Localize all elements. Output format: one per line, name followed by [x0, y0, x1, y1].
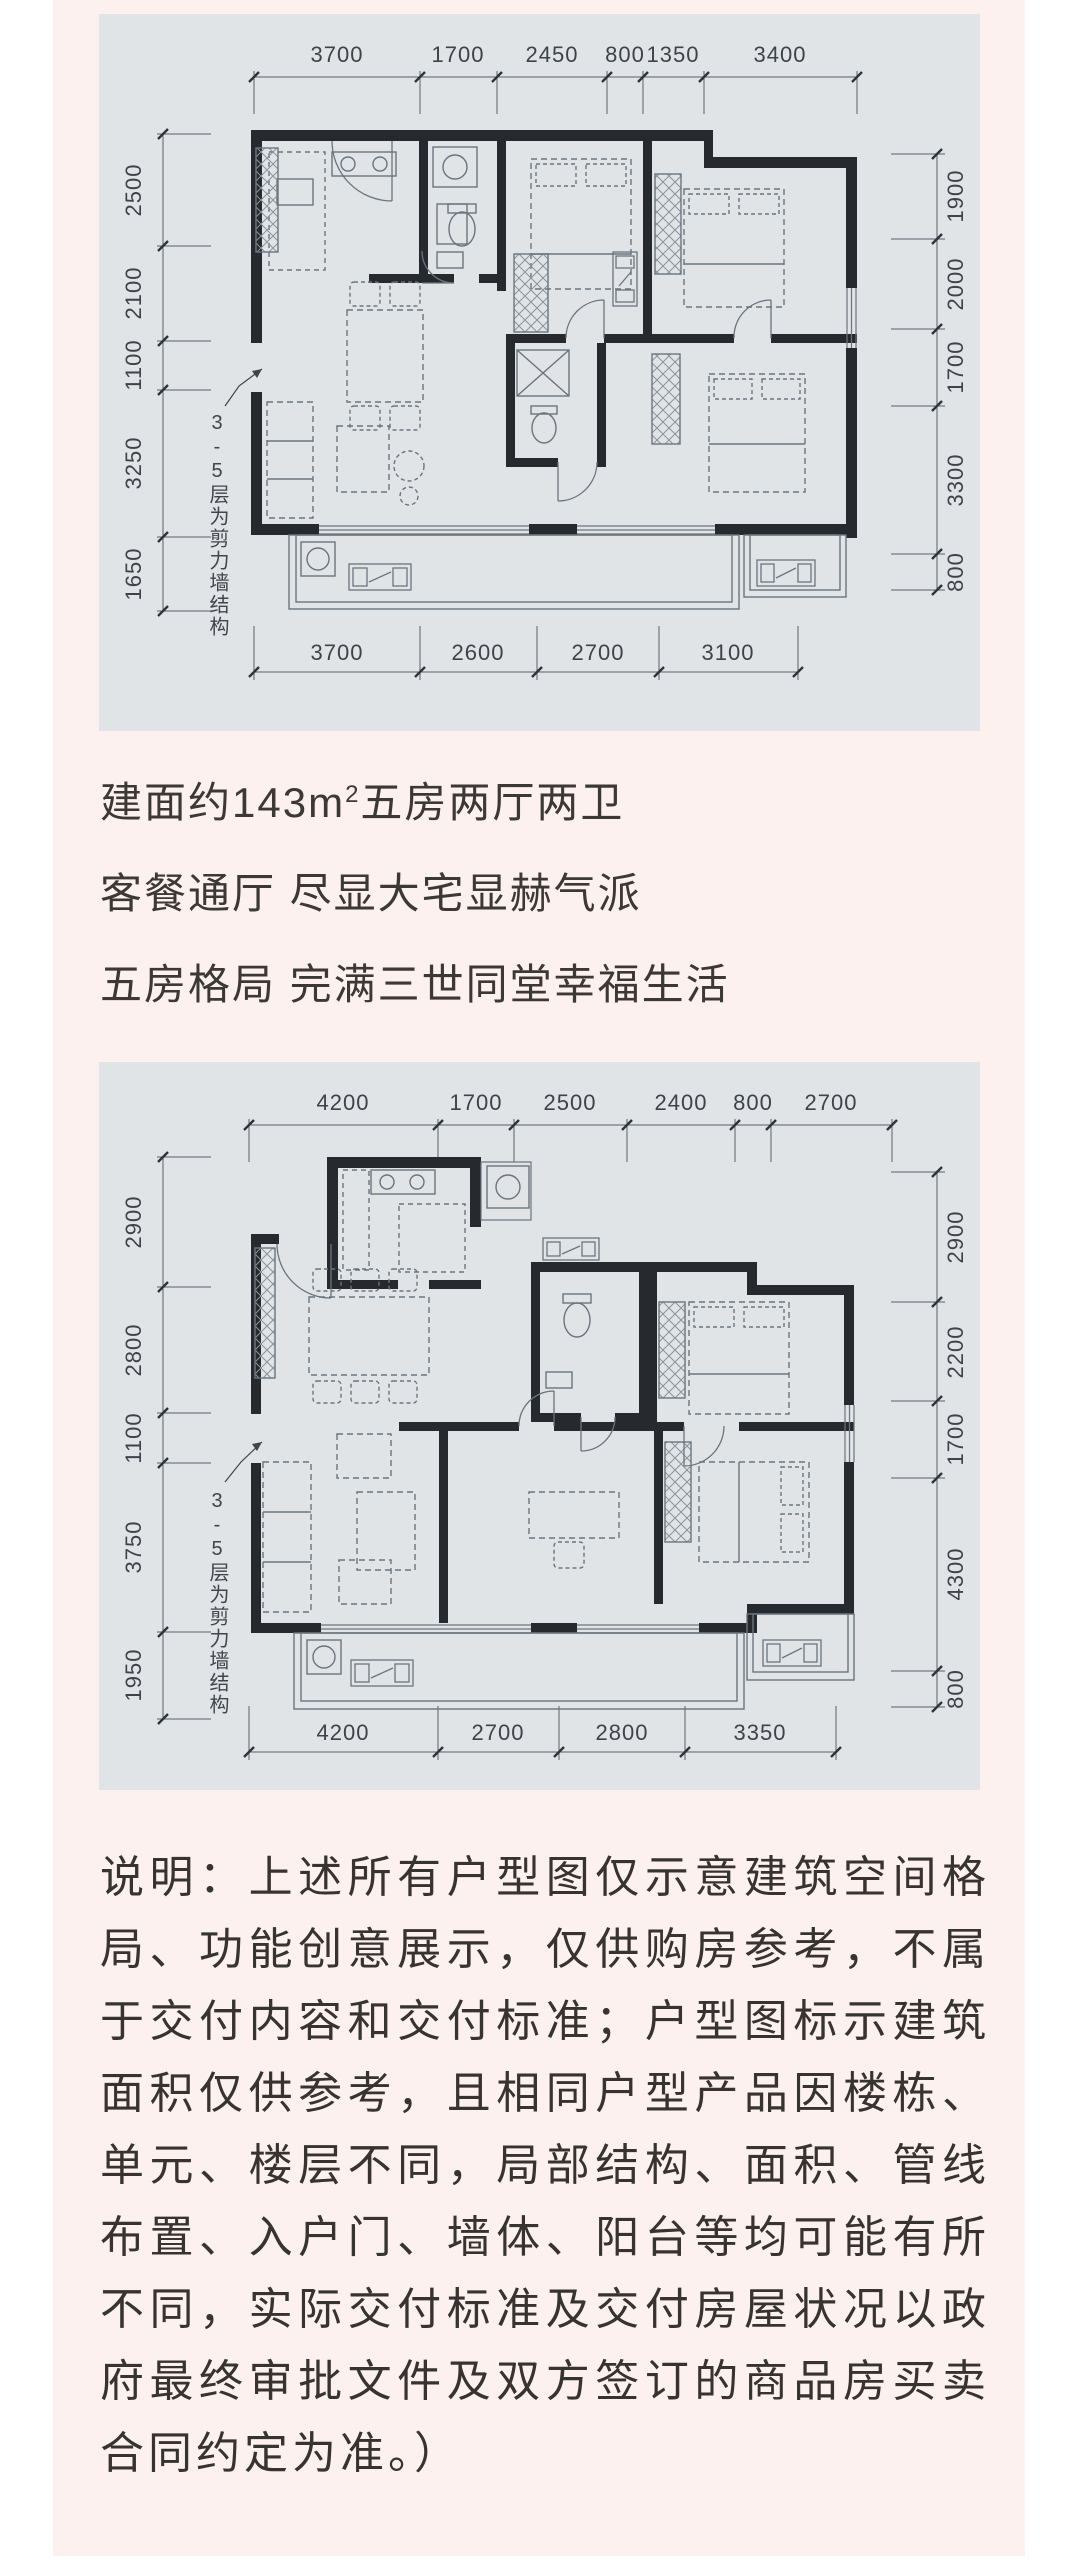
dim-label: 2450	[526, 42, 579, 67]
sofa	[267, 402, 313, 518]
disclaimer-line: 说明：上述所有户型图仅示意建筑空间格	[100, 1856, 986, 1928]
sofa	[263, 1462, 311, 1612]
dim-label: 1700	[943, 1413, 968, 1466]
toilet-icon	[563, 1294, 591, 1337]
dim-label: 800	[733, 1090, 773, 1115]
dim-label: 2800	[596, 1720, 649, 1745]
disclaimer-line: 单元、楼层不同，局部结构、面积、管线	[100, 2144, 986, 2216]
headline-line-3: 五房格局 完满三世同堂幸福生活	[100, 963, 980, 1006]
door-arcs	[332, 141, 771, 501]
bed	[684, 189, 784, 307]
dim-label: 800	[943, 552, 968, 592]
floorplan-1-card: 3700 1700 2450 800 1350 3400 3700 2600 2…	[99, 14, 980, 731]
dim-label: 1900	[943, 170, 968, 223]
dim-label: 2900	[943, 1211, 968, 1264]
floorplan-1-drawing: 3700 1700 2450 800 1350 3400 3700 2600 2…	[99, 14, 980, 731]
dim-label: 2700	[805, 1090, 858, 1115]
poster-panel: 3700 1700 2450 800 1350 3400 3700 2600 2…	[53, 0, 1025, 2556]
bed	[709, 374, 805, 492]
dining-table	[347, 282, 423, 430]
dim-label: 4200	[317, 1090, 370, 1115]
dim-label: 3300	[943, 454, 968, 507]
dim-label: 4200	[317, 1720, 370, 1745]
dim-label: 2700	[572, 640, 625, 665]
dimension-lines	[157, 1119, 945, 1760]
disclaimer-block: 说明：上述所有户型图仅示意建筑空间格 局、功能创意展示，仅供购房参考，不属 于交…	[100, 1856, 986, 2504]
dim-label: 3350	[734, 1720, 787, 1745]
dining-table	[309, 1269, 429, 1403]
page: { "page": { "background": "#ffffff", "pa…	[0, 0, 1080, 2567]
washing-machine-icon	[307, 1640, 341, 1674]
disclaimer-line: 局、功能创意展示，仅供购房参考，不属	[100, 1928, 986, 2000]
dim-label: 1350	[647, 42, 700, 67]
washing-machine-icon	[301, 542, 335, 576]
dim-label: 2400	[655, 1090, 708, 1115]
window-glyphs	[319, 288, 856, 534]
dim-label: 3700	[311, 640, 364, 665]
furniture	[256, 147, 805, 576]
disclaimer-line: 府最终审批文件及双方签订的商品房买卖	[100, 2360, 986, 2432]
dim-label: 2000	[943, 258, 968, 311]
toilet-icon	[531, 406, 557, 443]
stove-icon	[371, 1170, 435, 1194]
dim-label: 2800	[121, 1324, 146, 1377]
dimension-ticks	[158, 1120, 942, 1757]
dim-label: 2900	[121, 1196, 146, 1249]
disclaimer-line: 面积仅供参考，且相同户型产品因楼栋、	[100, 2072, 986, 2144]
dim-label: 3700	[311, 42, 364, 67]
dim-label: 800	[943, 1669, 968, 1709]
stove-icon	[332, 152, 396, 176]
toilet-icon	[448, 204, 476, 246]
washing-machine-icon	[433, 147, 477, 187]
desk	[529, 1492, 619, 1568]
headline-block: 建面约143m2五房两厅两卫 客餐通厅 尽显大宅显赫气派 五房格局 完满三世同堂…	[100, 781, 980, 1054]
bed	[699, 1462, 809, 1562]
dim-label: 1100	[121, 339, 146, 390]
headline-line-2: 客餐通厅 尽显大宅显赫气派	[100, 872, 980, 915]
dim-label: 2100	[121, 267, 146, 320]
dim-label: 2500	[544, 1090, 597, 1115]
shear-wall-note: 3-5层为剪力墙结构	[206, 412, 229, 638]
washing-machine-icon	[487, 1166, 529, 1208]
dim-label: 2700	[472, 1720, 525, 1745]
dim-label: 2200	[943, 1326, 968, 1379]
disclaimer-line: 不同，实际交付标准及交付房屋状况以政	[100, 2288, 986, 2360]
disclaimer-line: 合同约定为准。）	[100, 2432, 986, 2504]
dim-label: 3750	[121, 1521, 146, 1574]
dim-label: 1700	[450, 1090, 503, 1115]
shear-wall-note: 3-5层为剪力墙结构	[206, 1490, 229, 1716]
dim-label: 800	[605, 42, 645, 67]
dim-label: 1950	[121, 1649, 146, 1702]
walls	[251, 130, 857, 538]
headline-line-1: 建面约143m2五房两厅两卫	[100, 781, 980, 824]
dim-label: 1700	[943, 341, 968, 394]
disclaimer-line: 于交付内容和交付标准；户型图标示建筑	[100, 2000, 986, 2072]
dim-label: 2600	[452, 640, 505, 665]
dim-label: 3250	[121, 437, 146, 490]
bed	[689, 1302, 789, 1414]
ac-unit-icon	[349, 252, 815, 590]
dim-label: 2500	[121, 164, 146, 217]
dim-label: 4300	[943, 1548, 968, 1601]
shower	[517, 350, 569, 396]
dim-label: 3400	[754, 42, 807, 67]
superscript-2: 2	[345, 781, 360, 808]
dim-label: 1100	[121, 1412, 146, 1463]
floorplan-2-card: 4200 1700 2500 2400 800 2700 4200 2700 2…	[99, 1062, 980, 1790]
dim-label: 3100	[702, 640, 755, 665]
dim-label: 1650	[121, 548, 146, 601]
dim-label: 1700	[432, 42, 485, 67]
floorplan-2-drawing: 4200 1700 2500 2400 800 2700 4200 2700 2…	[99, 1062, 980, 1790]
balcony-outline	[289, 535, 846, 609]
disclaimer-line: 布置、入户门、墙体、阳台等均可能有所	[100, 2216, 986, 2288]
